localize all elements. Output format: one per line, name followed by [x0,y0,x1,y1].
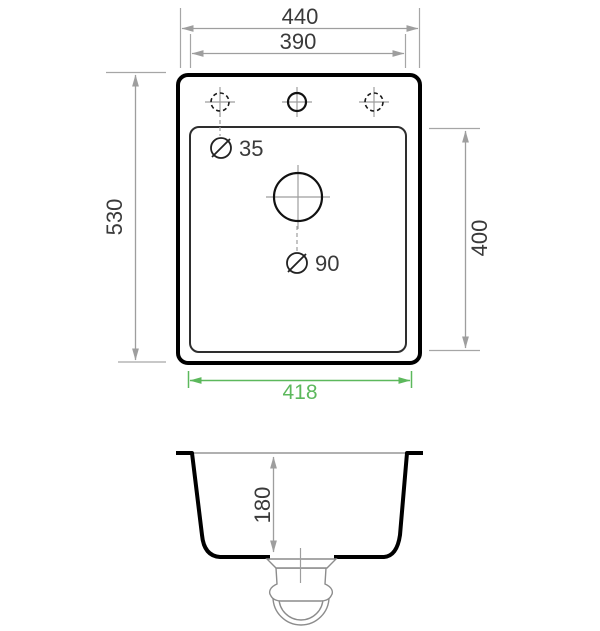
dimension-outer-height: 530 [102,73,166,363]
drain-hole-diameter-value: 90 [315,251,339,276]
diameter-symbol-icon [212,139,230,157]
sink-technical-drawing: 35 90 440 390 530 [0,0,600,631]
dimension-bowl-depth: 180 [250,457,275,552]
drain-trap [267,548,336,625]
outer-width-value: 440 [282,4,319,29]
dimension-drainer-width: 418 [189,371,412,404]
diameter-symbol-icon [288,254,306,272]
tap-hole-right [359,87,389,117]
dimension-inner-height: 400 [429,129,492,351]
drainer-width-value: 418 [282,381,317,404]
top-view: 35 90 [178,75,420,363]
tap-hole-diameter-note: 35 [211,136,263,161]
sink-outer-outline [178,75,420,363]
tap-hole-left [205,87,235,117]
section-view: 180 [178,453,421,625]
tap-hole-diameter-value: 35 [239,136,263,161]
tap-hole-center [282,87,312,117]
dimension-inner-width: 390 [191,29,406,68]
bowl-section-outline [178,453,421,557]
sink-bowl-outline [190,127,406,352]
drain-hole [266,165,330,229]
outer-height-value: 530 [102,199,127,236]
drain-hole-diameter-note: 90 [287,251,339,276]
technical-drawing-page: 35 90 440 390 530 [0,0,600,631]
inner-height-value: 400 [467,220,492,257]
trap-flange [267,559,336,568]
bowl-depth-value: 180 [250,487,275,524]
inner-width-value: 390 [280,29,317,54]
